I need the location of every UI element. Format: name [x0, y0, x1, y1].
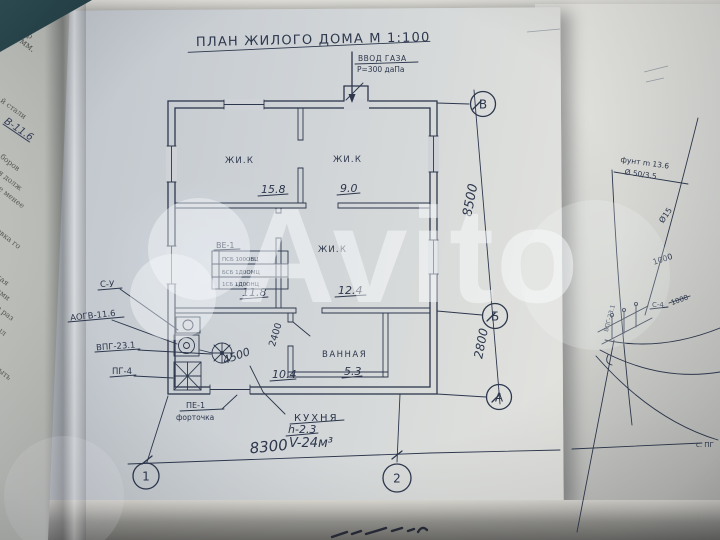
dim-2800: 2800	[471, 327, 491, 360]
axis-1: 1	[142, 470, 150, 484]
plan-interior-walls	[175, 108, 430, 377]
window-callout-code: ПЕ-1	[186, 401, 205, 410]
kitchen-volume: V-24м³	[289, 436, 333, 451]
plan-windows	[166, 99, 439, 395]
gas-pressure-label: Р=300 даПа	[357, 65, 405, 74]
equipment-callouts: С-У АОГВ-11.6 ВПГ-23.1 ПГ-4	[68, 280, 211, 378]
sink-icon	[176, 317, 200, 333]
dim-4500: 4500	[221, 345, 252, 367]
window-callout-text: форточка	[176, 413, 214, 422]
window-icon	[428, 240, 439, 274]
photo-of-floor-plan: нилые чер 250мм. й стали В-11.6 боров я …	[0, 0, 720, 540]
dimension-right: В Б А 8500 2800	[437, 90, 512, 410]
rs-dim-b: 1000	[670, 293, 689, 307]
vent-label: ВЕ-1	[216, 241, 235, 250]
room-label-living3: ЖИ.К	[318, 245, 347, 255]
page-title: ПЛАН ЖИЛОГО ДОМА М 1:100	[196, 30, 431, 50]
entry-porch	[344, 83, 369, 110]
bottom-edge-marks	[332, 528, 427, 537]
drawing-layer: ПЛАН ЖИЛОГО ДОМА М 1:100	[0, 0, 720, 540]
inner-dimensions: 4500 2400	[221, 322, 285, 367]
window-callout: ПЕ-1 форточка	[176, 395, 237, 422]
rs-dim-a: 1000	[652, 252, 674, 267]
plan-outer-walls	[168, 101, 437, 394]
window-icon	[224, 99, 264, 110]
dim-8300: 8300	[249, 436, 289, 458]
right-sheet-diagram: фунт m 13.6 Ø 50/3.5 Ø15 1000 С-4 1000 В…	[577, 118, 720, 532]
rs-corner-fragment: с. ПГ	[696, 441, 714, 449]
vent-stamp-row: БСБ 1Д0ОМЦ	[222, 270, 261, 276]
dim-2400: 2400	[267, 322, 285, 348]
room-label-living1: ЖИ.К	[225, 156, 254, 166]
gas-inlet-annotation: ВВОД ГАЗА Р=300 даПа	[349, 52, 419, 103]
vent-stamp-row: 1СБ 1Д0ОНЦ	[222, 282, 260, 288]
dim-8500: 8500	[460, 182, 481, 217]
window-icon	[166, 146, 177, 182]
misc-marks	[527, 29, 668, 82]
room-labels: ЖИ.К 15.8 ЖИ.К 9.0 ЖИ.К 12.4 ВЕ-1 11.8 В…	[214, 155, 367, 381]
axis-2: 2	[393, 472, 401, 486]
window-icon	[428, 136, 439, 172]
axis-a: А	[495, 391, 504, 405]
gas-inlet-label: ВВОД ГАЗА	[358, 54, 407, 63]
window-icon	[166, 246, 177, 284]
dimension-bottom: 1 2 8300	[128, 394, 702, 492]
rs-riser-label: ВПГ-23.1	[603, 304, 617, 333]
vent-stamp: ПСБ 100ОВЦ БСБ 1Д0ОМЦ 1СБ 1Д0ОНЦ	[212, 251, 288, 289]
axis-v: В	[479, 98, 487, 112]
room-label-living2: ЖИ.К	[333, 155, 362, 165]
gas-stove-icon	[174, 362, 201, 390]
bathroom-label: ВАННАЯ	[322, 350, 367, 360]
axis-b: Б	[491, 310, 499, 324]
title-block: ПЛАН ЖИЛОГО ДОМА М 1:100	[188, 30, 431, 52]
vent-stamp-row: ПСБ 100ОВЦ	[222, 257, 259, 263]
window-icon	[210, 384, 250, 395]
